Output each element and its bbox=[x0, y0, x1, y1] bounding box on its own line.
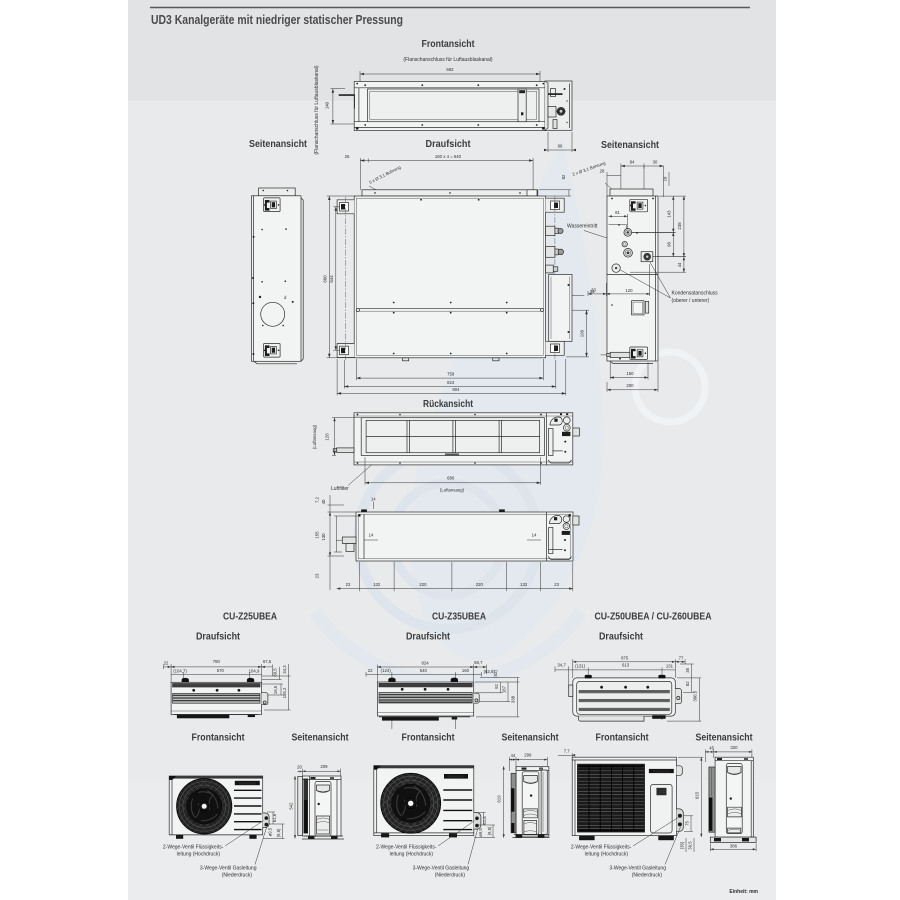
svg-text:Seitenansicht: Seitenansicht bbox=[502, 733, 560, 744]
svg-text:386: 386 bbox=[730, 843, 738, 848]
svg-text:126: 126 bbox=[325, 433, 330, 441]
svg-text:(oberer / unterer): (oberer / unterer) bbox=[672, 298, 710, 304]
svg-text:84: 84 bbox=[630, 160, 635, 165]
svg-text:44: 44 bbox=[677, 262, 682, 267]
svg-text:155,2: 155,2 bbox=[282, 687, 287, 698]
svg-text:(35): (35) bbox=[680, 841, 685, 849]
svg-text:(124): (124) bbox=[381, 668, 392, 673]
svg-text:615: 615 bbox=[695, 791, 700, 799]
svg-text:(Niederdruck): (Niederdruck) bbox=[435, 873, 466, 879]
svg-text:leitung (Hochdruck): leitung (Hochdruck) bbox=[390, 851, 434, 857]
svg-text:7,2: 7,2 bbox=[315, 496, 320, 503]
svg-text:23: 23 bbox=[554, 582, 559, 587]
svg-text:77: 77 bbox=[679, 655, 684, 660]
svg-text:Wassereintritt: Wassereintritt bbox=[567, 224, 598, 230]
svg-text:209: 209 bbox=[320, 764, 328, 769]
svg-text:758: 758 bbox=[447, 371, 455, 376]
svg-text:UD3 Kanalgeräte mit niedriger: UD3 Kanalgeräte mit niedriger statischer… bbox=[151, 12, 403, 27]
svg-text:3-Wege-Ventil Gasleitung: 3-Wege-Ventil Gasleitung bbox=[413, 865, 470, 871]
svg-text:Panasonic: Panasonic bbox=[239, 781, 256, 785]
svg-text:200: 200 bbox=[626, 383, 634, 388]
svg-text:140: 140 bbox=[325, 101, 330, 109]
svg-text:613: 613 bbox=[622, 662, 630, 667]
svg-text:26: 26 bbox=[345, 154, 350, 159]
svg-text:120: 120 bbox=[625, 288, 633, 293]
svg-text:780: 780 bbox=[213, 659, 221, 664]
svg-text:(131): (131) bbox=[575, 664, 586, 669]
svg-text:320: 320 bbox=[730, 745, 738, 750]
svg-text:220: 220 bbox=[476, 582, 484, 587]
svg-text:Frontansicht: Frontansicht bbox=[422, 38, 475, 50]
svg-text:28: 28 bbox=[600, 169, 605, 174]
svg-text:Seitenansicht: Seitenansicht bbox=[601, 139, 659, 151]
svg-text:30: 30 bbox=[653, 160, 658, 165]
svg-text:CU-Z35UBEA: CU-Z35UBEA bbox=[432, 612, 486, 623]
svg-text:Luftfilter: Luftfilter bbox=[331, 486, 349, 492]
svg-text:Frontansicht: Frontansicht bbox=[596, 733, 650, 744]
svg-text:338: 338 bbox=[511, 695, 516, 703]
svg-text:Frontansicht: Frontansicht bbox=[192, 733, 246, 744]
svg-text:40: 40 bbox=[321, 499, 326, 504]
svg-text:96: 96 bbox=[558, 144, 563, 149]
svg-text:81: 81 bbox=[615, 210, 620, 215]
svg-text:Draufsicht: Draufsicht bbox=[426, 138, 471, 150]
svg-text:Rückansicht: Rückansicht bbox=[423, 398, 473, 410]
svg-text:2-Wege-Ventil Flüssigkeits-: 2-Wege-Ventil Flüssigkeits- bbox=[571, 844, 632, 850]
svg-text:33: 33 bbox=[591, 288, 596, 293]
svg-text:(52): (52) bbox=[493, 670, 498, 678]
svg-text:75: 75 bbox=[685, 821, 690, 826]
svg-text:16,5: 16,5 bbox=[273, 685, 278, 694]
svg-text:67,6: 67,6 bbox=[263, 659, 272, 664]
svg-text:570: 570 bbox=[217, 668, 225, 673]
svg-text:238: 238 bbox=[677, 222, 682, 230]
svg-text:155: 155 bbox=[315, 531, 320, 539]
svg-text:2-Wege-Ventil Flüssigkeits-: 2-Wege-Ventil Flüssigkeits- bbox=[163, 844, 224, 850]
svg-text:Seitenansicht: Seitenansicht bbox=[696, 733, 754, 744]
svg-text:23: 23 bbox=[346, 582, 351, 587]
svg-text:Draufsicht: Draufsicht bbox=[196, 632, 241, 643]
svg-text:680: 680 bbox=[447, 476, 455, 481]
svg-text:14: 14 bbox=[371, 497, 376, 502]
svg-text:660: 660 bbox=[323, 275, 328, 283]
svg-text:14: 14 bbox=[369, 533, 374, 538]
svg-text:160: 160 bbox=[462, 668, 470, 673]
svg-text:Kondensatanschluss: Kondensatanschluss bbox=[672, 291, 719, 297]
svg-text:(Flanschanschluss für Luftausb: (Flanschanschluss für Luftausblaskanal) bbox=[314, 65, 320, 155]
svg-text:160 x 4 = 640: 160 x 4 = 640 bbox=[435, 154, 462, 159]
svg-text:3-Wege-Ventil Gasleitung: 3-Wege-Ventil Gasleitung bbox=[609, 865, 666, 871]
svg-text:Einheit: mm: Einheit: mm bbox=[729, 889, 758, 895]
svg-text:ø9,5: ø9,5 bbox=[478, 828, 483, 837]
svg-text:Draufsicht: Draufsicht bbox=[406, 632, 451, 643]
svg-text:Seitenansicht: Seitenansicht bbox=[249, 138, 307, 150]
svg-text:299: 299 bbox=[524, 752, 532, 757]
svg-text:7,7: 7,7 bbox=[564, 749, 571, 754]
svg-text:824: 824 bbox=[422, 661, 430, 666]
svg-text:132: 132 bbox=[373, 582, 381, 587]
svg-text:904: 904 bbox=[452, 387, 460, 392]
svg-text:167: 167 bbox=[502, 685, 507, 693]
svg-text:Frontansicht: Frontansicht bbox=[402, 733, 456, 744]
svg-text:82: 82 bbox=[685, 681, 690, 686]
svg-text:2-Wege-Ventil Flüssigkeits-: 2-Wege-Ventil Flüssigkeits- bbox=[376, 844, 437, 850]
svg-text:82: 82 bbox=[561, 174, 566, 179]
svg-text:61,6: 61,6 bbox=[272, 813, 277, 822]
svg-text:875: 875 bbox=[621, 655, 629, 660]
svg-text:Seitenansicht: Seitenansicht bbox=[292, 733, 350, 744]
svg-text:104,9: 104,9 bbox=[249, 668, 260, 673]
svg-text:(Luftansaug): (Luftansaug) bbox=[440, 488, 465, 493]
svg-text:644: 644 bbox=[329, 275, 334, 283]
svg-text:Draufsicht: Draufsicht bbox=[599, 632, 644, 643]
svg-text:360,5: 360,5 bbox=[692, 690, 697, 701]
svg-text:619: 619 bbox=[497, 795, 502, 803]
svg-text:34,7: 34,7 bbox=[557, 662, 566, 667]
svg-text:68,7: 68,7 bbox=[474, 660, 483, 665]
svg-text:143: 143 bbox=[667, 210, 672, 218]
svg-text:60,5: 60,5 bbox=[273, 668, 278, 677]
svg-text:542: 542 bbox=[288, 802, 293, 810]
svg-text:130: 130 bbox=[321, 533, 326, 541]
svg-text:(Niederdruck): (Niederdruck) bbox=[222, 873, 253, 879]
svg-text:Panasonic: Panasonic bbox=[653, 769, 670, 773]
svg-text:132: 132 bbox=[520, 582, 528, 587]
svg-text:ø9,5: ø9,5 bbox=[268, 827, 273, 836]
svg-text:CU-Z50UBEA / CU-Z60UBEA: CU-Z50UBEA / CU-Z60UBEA bbox=[595, 612, 712, 623]
svg-text:540: 540 bbox=[420, 668, 428, 673]
svg-text:CU-Z25UBEA: CU-Z25UBEA bbox=[223, 612, 277, 623]
svg-text:92: 92 bbox=[494, 684, 499, 689]
svg-text:Panasonic: Panasonic bbox=[448, 775, 465, 779]
svg-text:(Luftansaug): (Luftansaug) bbox=[312, 424, 317, 449]
svg-text:20: 20 bbox=[297, 765, 302, 770]
svg-text:23: 23 bbox=[315, 573, 320, 578]
svg-text:18: 18 bbox=[663, 176, 668, 181]
svg-text:leitung (Hochdruck): leitung (Hochdruck) bbox=[177, 851, 221, 857]
svg-text:196: 196 bbox=[580, 329, 585, 337]
svg-text:131: 131 bbox=[666, 664, 674, 669]
svg-text:14: 14 bbox=[532, 533, 537, 538]
svg-text:(Flanschanschluss für Luftausb: (Flanschanschluss für Luftausblaskanal) bbox=[403, 57, 493, 63]
svg-text:(9,8): (9,8) bbox=[276, 828, 281, 837]
svg-text:35: 35 bbox=[685, 667, 690, 672]
svg-text:3-Wege-Ventil Gasleitung: 3-Wege-Ventil Gasleitung bbox=[200, 865, 257, 871]
svg-text:44: 44 bbox=[511, 753, 516, 758]
svg-text:692: 692 bbox=[446, 67, 454, 72]
svg-text:(Niederdruck): (Niederdruck) bbox=[632, 873, 663, 879]
svg-text:(104,7): (104,7) bbox=[173, 668, 187, 673]
svg-text:220: 220 bbox=[419, 582, 427, 587]
svg-text:39,5: 39,5 bbox=[688, 841, 693, 850]
svg-text:leitung (Hochdruck): leitung (Hochdruck) bbox=[585, 851, 629, 857]
svg-text:824: 824 bbox=[447, 380, 455, 385]
svg-text:98: 98 bbox=[667, 242, 672, 247]
svg-text:(9,8): (9,8) bbox=[487, 826, 492, 835]
svg-text:22: 22 bbox=[368, 668, 373, 673]
svg-text:150: 150 bbox=[626, 371, 634, 376]
svg-text:61,6: 61,6 bbox=[482, 816, 487, 825]
svg-text:22: 22 bbox=[164, 660, 169, 665]
svg-text:34,3: 34,3 bbox=[282, 665, 287, 674]
